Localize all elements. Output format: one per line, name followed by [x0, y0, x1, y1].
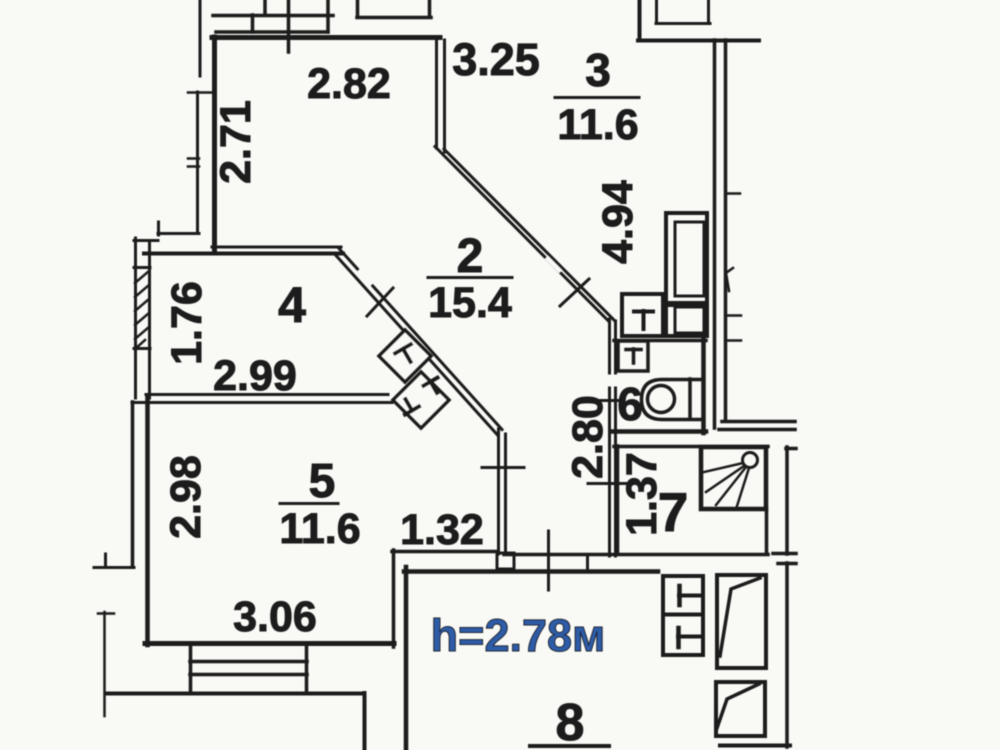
- svg-text:8: 8: [556, 694, 585, 750]
- svg-text:5: 5: [309, 455, 336, 508]
- svg-text:1.37: 1.37: [618, 452, 666, 536]
- svg-text:2.71: 2.71: [212, 100, 260, 184]
- svg-text:11.6: 11.6: [557, 101, 638, 149]
- svg-text:4: 4: [278, 277, 306, 333]
- svg-text:11.6: 11.6: [279, 505, 360, 553]
- svg-text:2.99: 2.99: [213, 352, 297, 400]
- svg-text:1.76: 1.76: [163, 281, 211, 365]
- svg-text:15.4: 15.4: [428, 279, 512, 327]
- svg-text:2.98: 2.98: [162, 455, 210, 539]
- svg-text:2: 2: [457, 230, 484, 283]
- svg-text:3.25: 3.25: [452, 34, 540, 85]
- svg-text:h=2.78м: h=2.78м: [431, 610, 606, 661]
- svg-text:3: 3: [585, 44, 611, 96]
- svg-text:6: 6: [617, 378, 643, 430]
- svg-text:4.94: 4.94: [594, 180, 642, 264]
- svg-text:1.32: 1.32: [400, 506, 484, 554]
- svg-text:2.82: 2.82: [307, 60, 391, 108]
- svg-text:2.80: 2.80: [564, 395, 612, 479]
- svg-text:3.06: 3.06: [233, 593, 317, 641]
